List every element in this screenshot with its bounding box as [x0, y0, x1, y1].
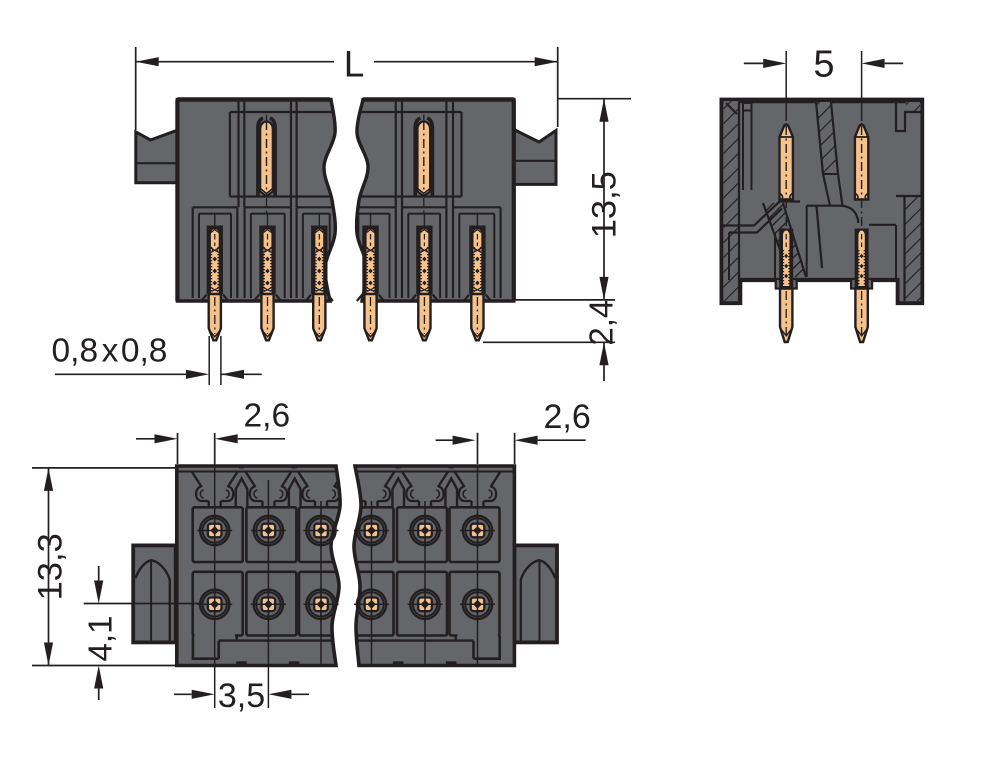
svg-text:13,3: 13,3 [32, 533, 70, 600]
svg-text:2,4: 2,4 [583, 300, 620, 346]
svg-text:4,1: 4,1 [82, 616, 119, 662]
svg-text:0,8x0,8: 0,8x0,8 [52, 333, 168, 370]
svg-text:13,5: 13,5 [586, 171, 624, 238]
svg-text:3,5: 3,5 [218, 677, 265, 715]
svg-text:5: 5 [813, 44, 834, 86]
svg-text:2,6: 2,6 [244, 398, 291, 435]
svg-text:2,6: 2,6 [544, 398, 591, 436]
svg-text:L: L [344, 44, 365, 85]
